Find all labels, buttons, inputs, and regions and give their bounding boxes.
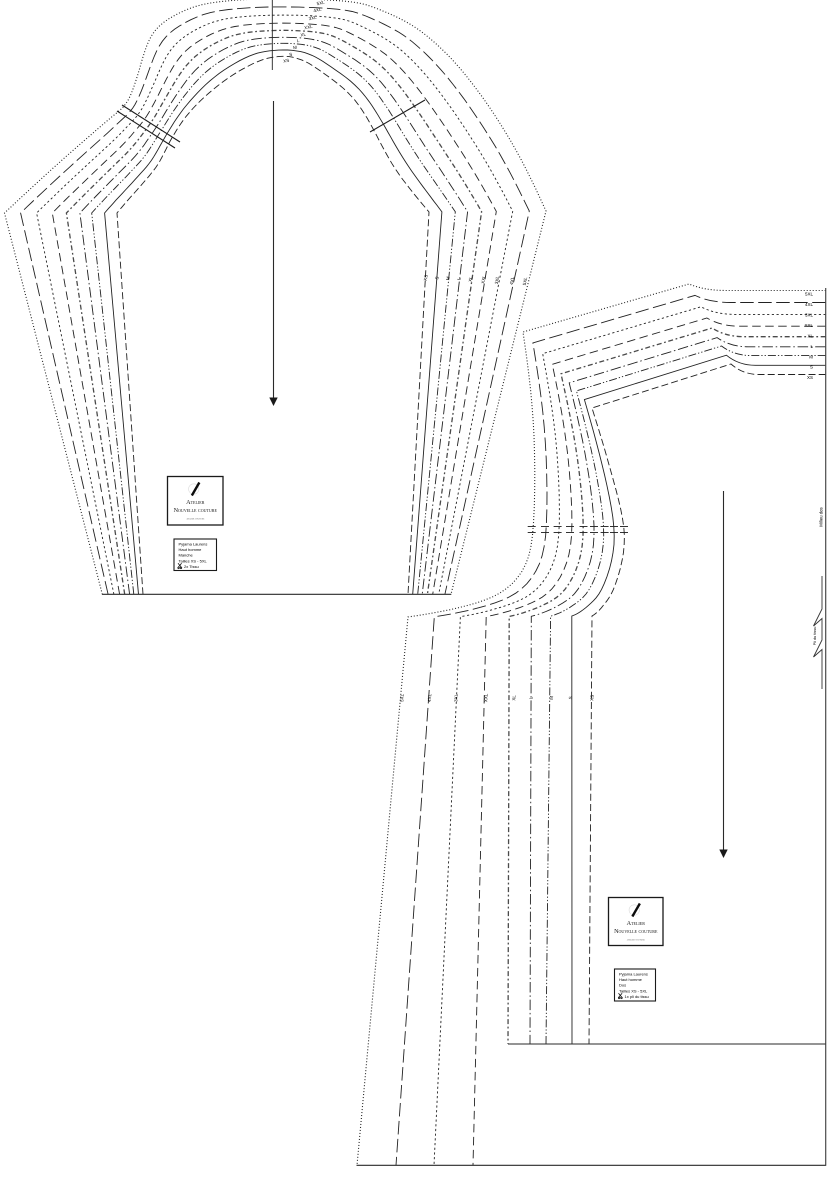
svg-text:Tailles XS - 5XL: Tailles XS - 5XL <box>179 558 208 563</box>
svg-text:S: S <box>568 696 573 699</box>
svg-text:Tailles XS - 5XL: Tailles XS - 5XL <box>619 988 648 993</box>
svg-text:4XL: 4XL <box>805 302 814 307</box>
svg-text:Milieu dos: Milieu dos <box>819 507 824 526</box>
svg-text:3XL: 3XL <box>805 313 814 318</box>
svg-text:Manche: Manche <box>179 553 194 558</box>
svg-text:Pyjama Laurens: Pyjama Laurens <box>179 542 208 547</box>
svg-text:Dos: Dos <box>619 983 626 988</box>
svg-text:2x Tissu: 2x Tissu <box>184 564 199 569</box>
svg-text:XXL: XXL <box>483 693 489 702</box>
svg-text:XS: XS <box>589 695 594 701</box>
svg-text:M: M <box>809 355 813 360</box>
svg-text:1x pli du tissu: 1x pli du tissu <box>625 994 649 999</box>
svg-text:XS: XS <box>423 274 429 281</box>
svg-text:Atelier: Atelier <box>186 499 205 506</box>
svg-text:Nouvelle couture: Nouvelle couture <box>614 928 658 935</box>
svg-text:XL: XL <box>511 694 516 700</box>
svg-text:3XL: 3XL <box>453 693 459 702</box>
svg-text:Pyjama Laurens: Pyjama Laurens <box>619 972 648 977</box>
svg-text:atelier couture: atelier couture <box>186 518 205 521</box>
svg-text:atelier couture: atelier couture <box>627 939 646 942</box>
svg-text:5XL: 5XL <box>805 292 814 297</box>
svg-text:XXL: XXL <box>804 323 813 328</box>
svg-text:XL: XL <box>807 334 813 339</box>
svg-text:5XL: 5XL <box>399 693 405 702</box>
svg-text:Pli du tissu: Pli du tissu <box>812 627 817 646</box>
svg-text:XS: XS <box>807 375 813 380</box>
svg-text:Nouvelle couture: Nouvelle couture <box>174 507 218 514</box>
svg-text:Haut homme: Haut homme <box>619 977 643 982</box>
svg-text:4XL: 4XL <box>427 693 433 702</box>
svg-text:Atelier: Atelier <box>627 920 646 927</box>
svg-text:M: M <box>549 696 554 700</box>
svg-text:Haut homme: Haut homme <box>179 547 203 552</box>
svg-text:S: S <box>810 365 813 370</box>
